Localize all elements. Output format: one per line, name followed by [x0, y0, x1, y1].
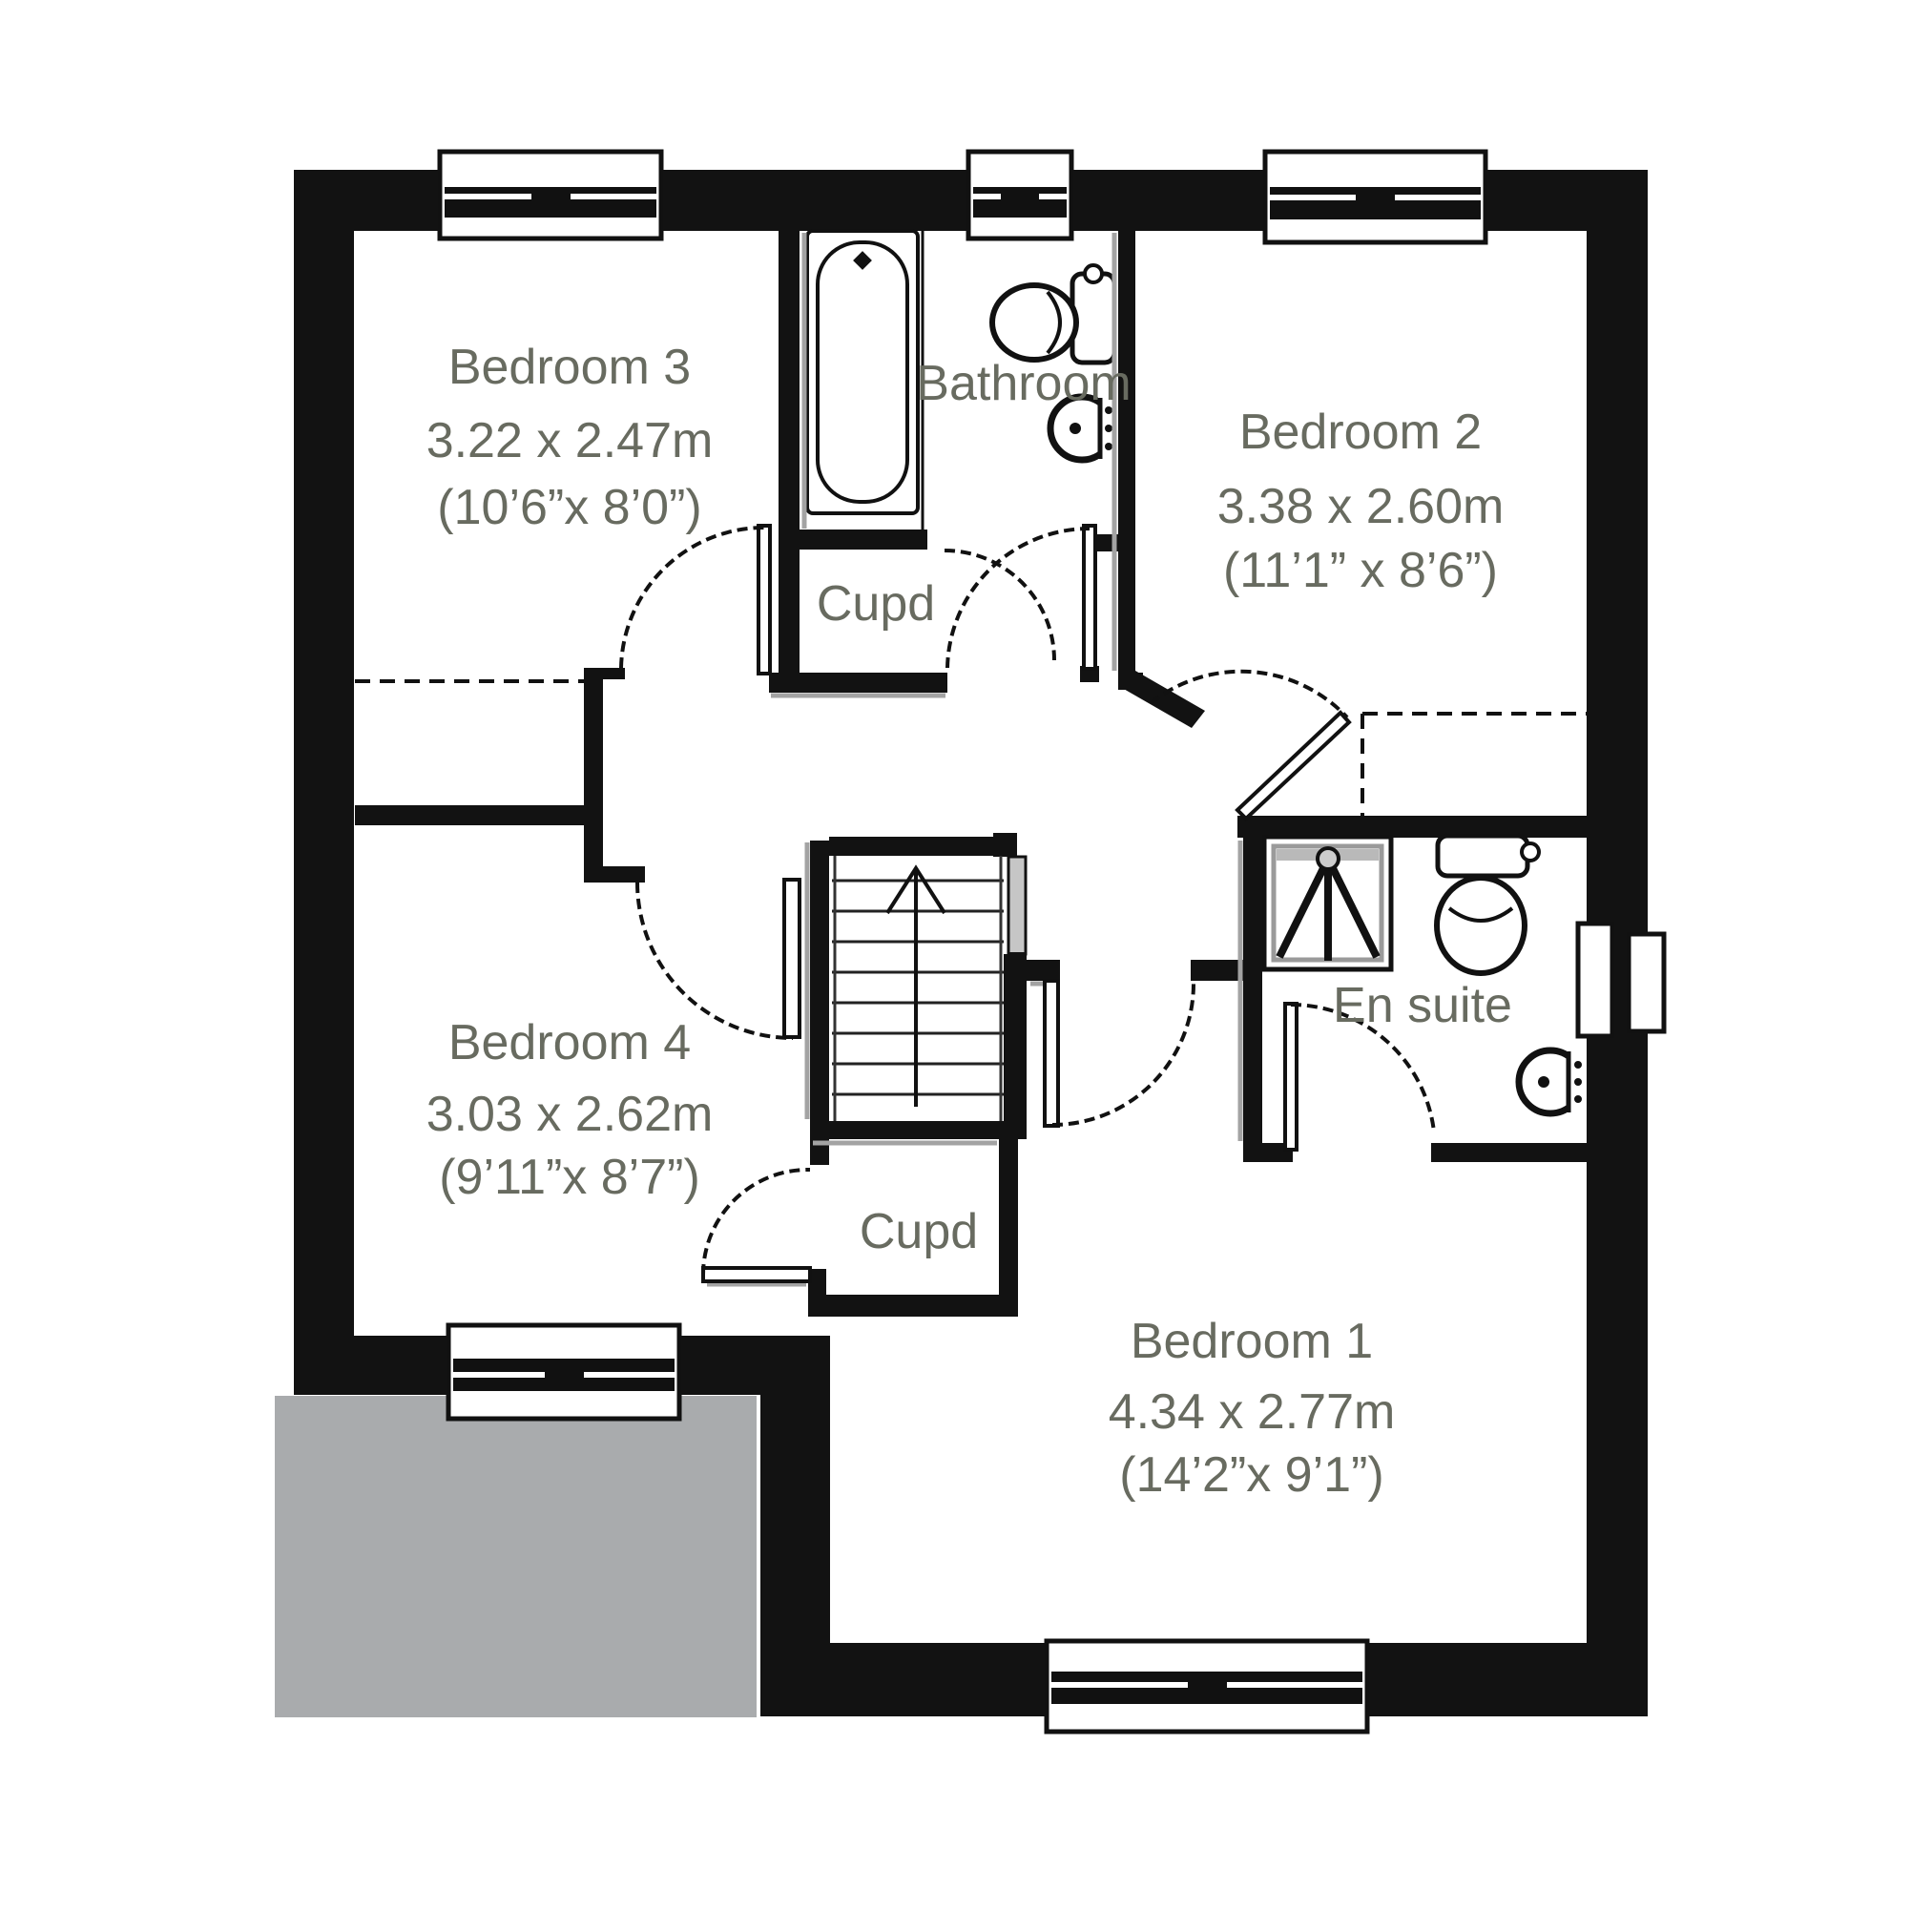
svg-text:Bathroom: Bathroom [916, 356, 1131, 411]
svg-text:(11’1” x 8’6”): (11’1” x 8’6”) [1223, 543, 1498, 598]
svg-text:Cupd: Cupd [860, 1204, 978, 1259]
svg-text:(10’6”x 8’0”): (10’6”x 8’0”) [437, 480, 701, 535]
svg-text:Cupd: Cupd [817, 576, 935, 632]
svg-text:3.03 x 2.62m: 3.03 x 2.62m [426, 1087, 714, 1142]
svg-text:Bedroom 1: Bedroom 1 [1131, 1314, 1373, 1369]
svg-text:Bedroom 4: Bedroom 4 [448, 1015, 691, 1070]
svg-text:(9’11”x 8’7”): (9’11”x 8’7”) [439, 1150, 700, 1205]
svg-text:(14’2”x 9’1”): (14’2”x 9’1”) [1119, 1447, 1383, 1503]
svg-text:Bedroom 2: Bedroom 2 [1239, 405, 1482, 460]
svg-text:4.34 x 2.77m: 4.34 x 2.77m [1109, 1384, 1396, 1440]
svg-text:En suite: En suite [1333, 978, 1512, 1033]
svg-text:3.22 x 2.47m: 3.22 x 2.47m [426, 413, 714, 468]
svg-text:3.38 x 2.60m: 3.38 x 2.60m [1217, 479, 1505, 534]
svg-text:Bedroom 3: Bedroom 3 [448, 340, 691, 395]
